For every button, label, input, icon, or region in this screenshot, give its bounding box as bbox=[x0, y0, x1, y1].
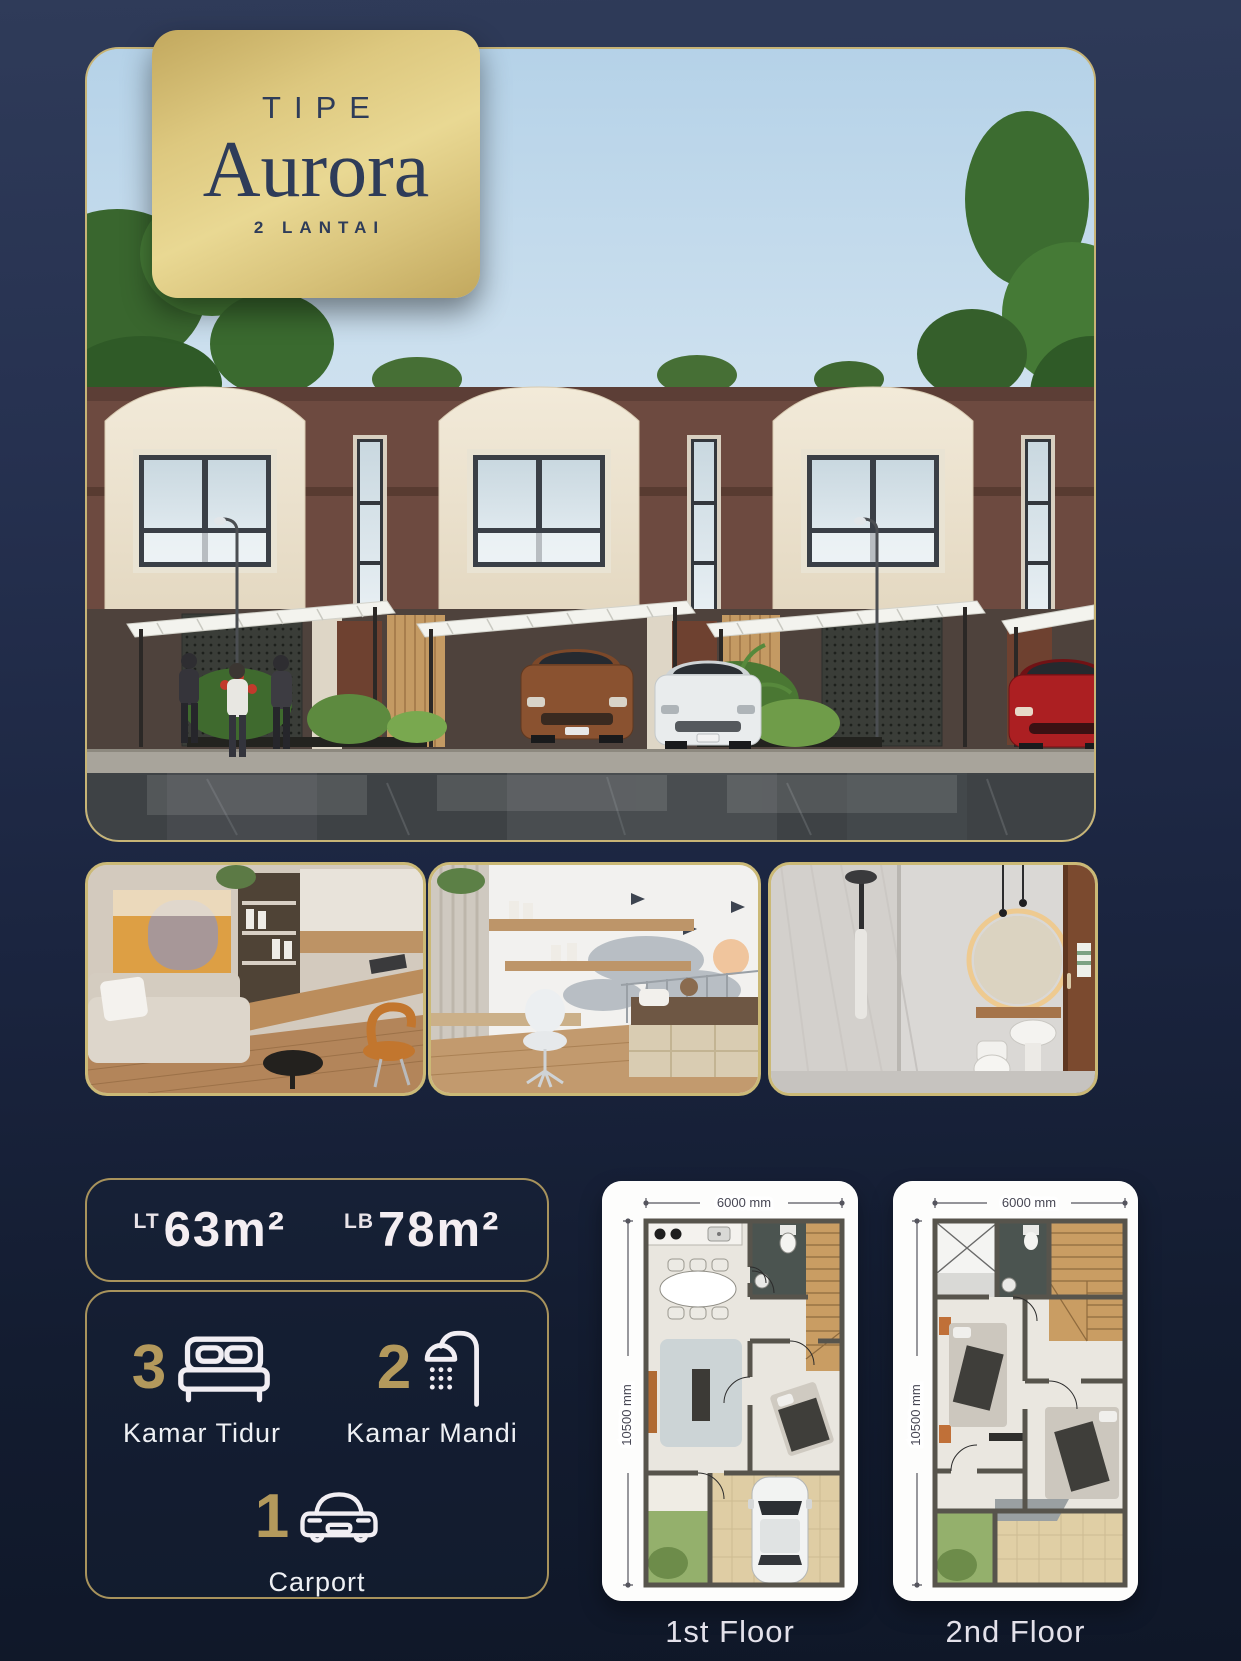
kids-room-illustration bbox=[431, 865, 758, 1093]
feature-bathrooms: 2 Kamar Mandi bbox=[317, 1326, 547, 1449]
area-spec-panel: LT 63m² LB 78m² bbox=[85, 1178, 549, 1282]
land-area-label: LT bbox=[134, 1210, 160, 1234]
mirror bbox=[969, 911, 1067, 1009]
towel bbox=[1077, 943, 1091, 977]
dining-set bbox=[660, 1259, 736, 1319]
badge-subtitle: 2 LANTAI bbox=[247, 218, 385, 238]
badge-eyebrow: TIPE bbox=[249, 90, 383, 126]
white-car bbox=[655, 661, 761, 750]
carport-label: Carport bbox=[268, 1567, 365, 1598]
land-area: LT 63m² bbox=[134, 1202, 287, 1258]
plan1-height-dim: 10500 mm bbox=[619, 1384, 634, 1445]
sidewalk bbox=[87, 749, 1094, 773]
wet-road bbox=[87, 773, 1094, 840]
brochure-page: TIPE Aurora 2 LANTAI bbox=[0, 0, 1241, 1661]
feature-carport: 1 Carport bbox=[87, 1475, 547, 1598]
interior-photo-kids-room bbox=[428, 862, 761, 1096]
plan2-height-dim: 10500 mm bbox=[908, 1384, 923, 1445]
car-icon bbox=[299, 1486, 379, 1548]
interior-photo-study-room bbox=[85, 862, 426, 1096]
bathroom-illustration bbox=[771, 865, 1095, 1093]
building-area-value: 78m² bbox=[378, 1202, 500, 1258]
second-floor-label: 2nd Floor bbox=[893, 1614, 1138, 1650]
bathroom-count: 2 bbox=[377, 1337, 411, 1399]
bed-icon bbox=[176, 1331, 272, 1405]
plan1-width-dim: 6000 mm bbox=[717, 1195, 771, 1210]
bathroom-label: Kamar Mandi bbox=[346, 1418, 518, 1449]
bedroom-count: 3 bbox=[132, 1337, 166, 1399]
car-top-view bbox=[748, 1477, 812, 1583]
floor-plan-2nd: 6000 mm 10500 mm bbox=[893, 1181, 1138, 1601]
bed-2 bbox=[1045, 1407, 1119, 1499]
floor-plan-1st: 6000 mm 10500 mm bbox=[602, 1181, 858, 1601]
shower-icon bbox=[421, 1327, 487, 1409]
study-room-illustration bbox=[88, 865, 423, 1093]
bronze-suv bbox=[521, 649, 633, 743]
bed-1 bbox=[939, 1317, 1007, 1443]
features-panel: 3 Kamar Tidur 2 bbox=[85, 1290, 549, 1599]
land-area-value: 63m² bbox=[164, 1202, 286, 1258]
first-floor-plan: 6000 mm 10500 mm bbox=[602, 1181, 858, 1601]
plan2-width-dim: 6000 mm bbox=[1002, 1195, 1056, 1210]
carport-count: 1 bbox=[255, 1486, 289, 1548]
first-floor-label: 1st Floor bbox=[602, 1614, 858, 1650]
building-area-label: LB bbox=[344, 1210, 374, 1234]
red-car bbox=[1009, 659, 1094, 751]
feature-bedrooms: 3 Kamar Tidur bbox=[87, 1326, 317, 1449]
bedroom-label: Kamar Tidur bbox=[123, 1418, 281, 1449]
second-floor-plan: 6000 mm 10500 mm bbox=[893, 1181, 1138, 1601]
badge-title: Aurora bbox=[203, 128, 430, 212]
type-badge: TIPE Aurora 2 LANTAI bbox=[152, 30, 480, 298]
interior-photo-bathroom bbox=[768, 862, 1098, 1096]
building-area: LB 78m² bbox=[344, 1202, 500, 1258]
